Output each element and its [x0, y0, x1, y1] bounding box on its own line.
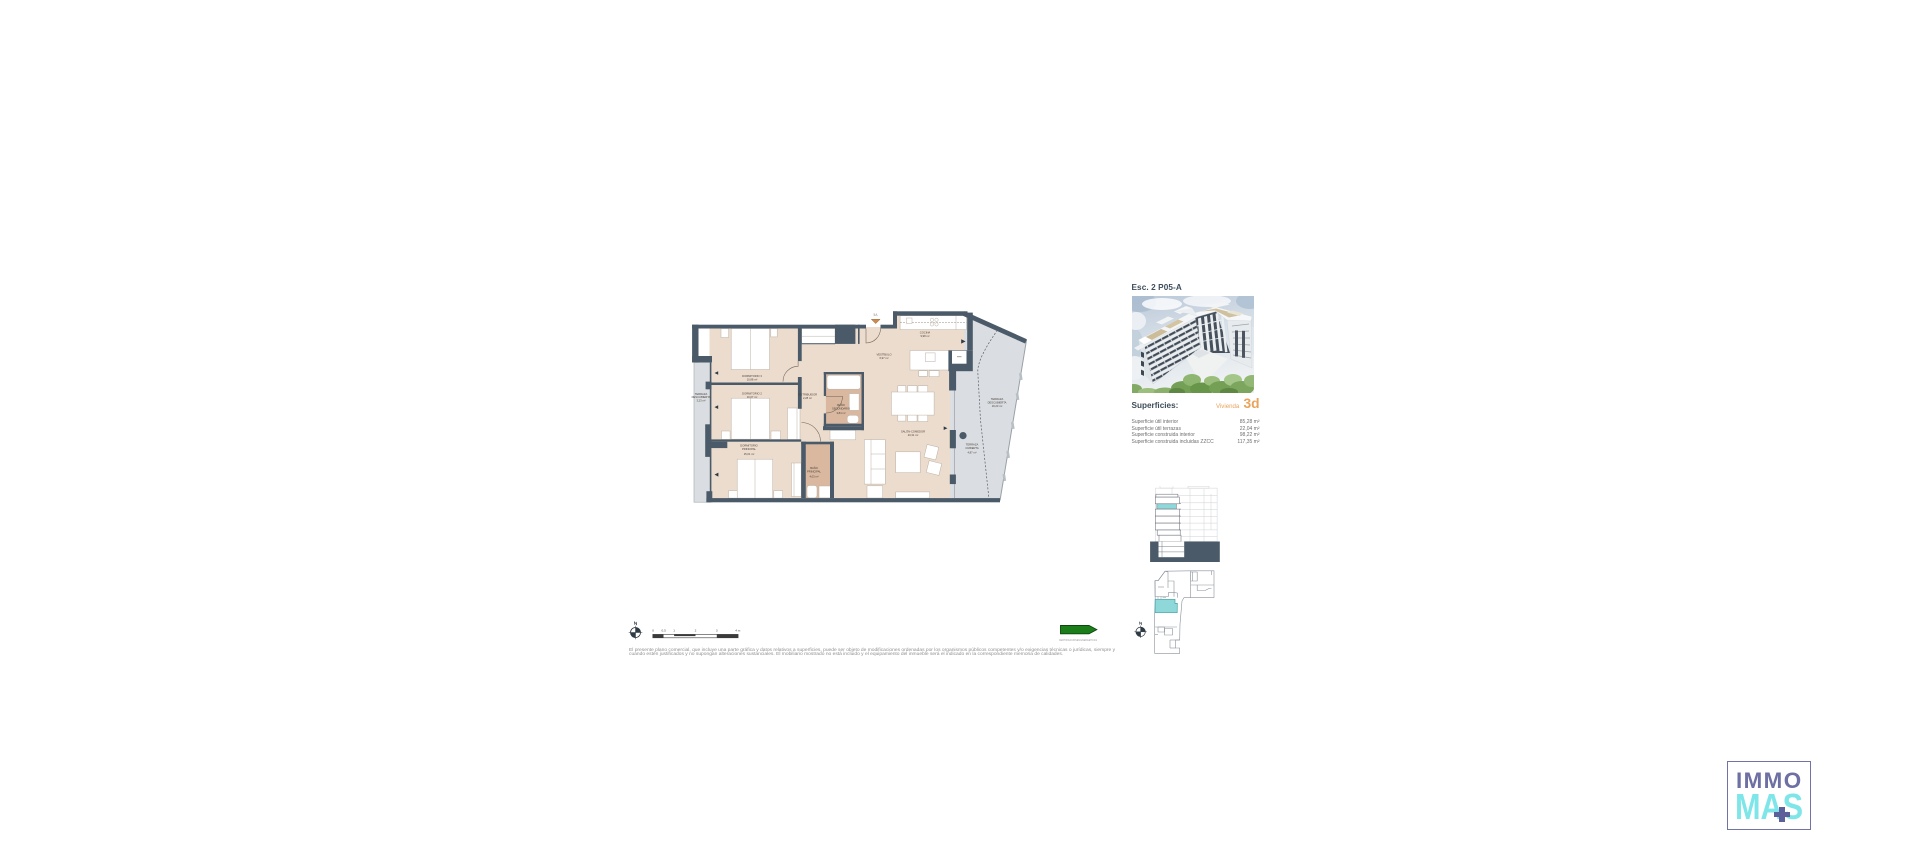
svg-text:PRINCIPAL: PRINCIPAL — [807, 469, 821, 473]
svg-text:CERTIFICACIONES ENERGETICAS: CERTIFICACIONES ENERGETICAS — [1059, 639, 1097, 642]
svg-text:DORMITORIO 2: DORMITORIO 2 — [742, 392, 762, 396]
svg-text:DORMITORIO: DORMITORIO — [740, 443, 757, 447]
svg-text:6,97 m²: 6,97 m² — [879, 356, 888, 360]
svg-text:4,03 m²: 4,03 m² — [809, 475, 818, 479]
svg-text:TERRAZA: TERRAZA — [991, 397, 1004, 401]
svg-text:10,07 m²: 10,07 m² — [747, 395, 758, 399]
svg-text:3,23 m²: 3,23 m² — [696, 399, 705, 403]
svg-text:0: 0 — [652, 629, 654, 633]
svg-text:DISTRIBUIDOR: DISTRIBUIDOR — [798, 392, 817, 396]
svg-text:DESCUBIERTA: DESCUBIERTA — [692, 395, 711, 399]
svg-text:DESCUBIERTA: DESCUBIERTA — [988, 401, 1007, 405]
svg-text:4,87 m²: 4,87 m² — [967, 450, 976, 454]
svg-text:2: 2 — [695, 629, 697, 633]
svg-text:0,5: 0,5 — [662, 629, 667, 633]
svg-text:1: 1 — [673, 629, 675, 633]
svg-text:23,31 m²: 23,31 m² — [908, 433, 919, 437]
svg-text:19,20 m²: 19,20 m² — [992, 404, 1003, 408]
svg-text:9,98 m²: 9,98 m² — [920, 334, 929, 338]
svg-text:10,88 m²: 10,88 m² — [747, 378, 758, 382]
svg-text:3: 3 — [716, 629, 718, 633]
svg-text:TERRAZA: TERRAZA — [966, 443, 979, 447]
svg-text:PRINCIPAL: PRINCIPAL — [742, 447, 756, 451]
svg-text:15,01 m²: 15,01 m² — [744, 452, 755, 456]
svg-text:TERRAZA: TERRAZA — [695, 392, 708, 396]
svg-text:CUBIERTA: CUBIERTA — [965, 446, 979, 450]
svg-text:VESTÍBULO: VESTÍBULO — [876, 352, 891, 356]
svg-text:3,84 m²: 3,84 m² — [836, 411, 845, 415]
svg-text:COCINA: COCINA — [920, 331, 931, 335]
svg-text:5A: 5A — [874, 313, 879, 317]
svg-text:SECUNDARIO: SECUNDARIO — [832, 406, 850, 410]
svg-text:2,28 m²: 2,28 m² — [803, 396, 812, 400]
svg-text:DORMITORIO 3: DORMITORIO 3 — [742, 374, 762, 378]
svg-text:4 m: 4 m — [735, 629, 741, 633]
